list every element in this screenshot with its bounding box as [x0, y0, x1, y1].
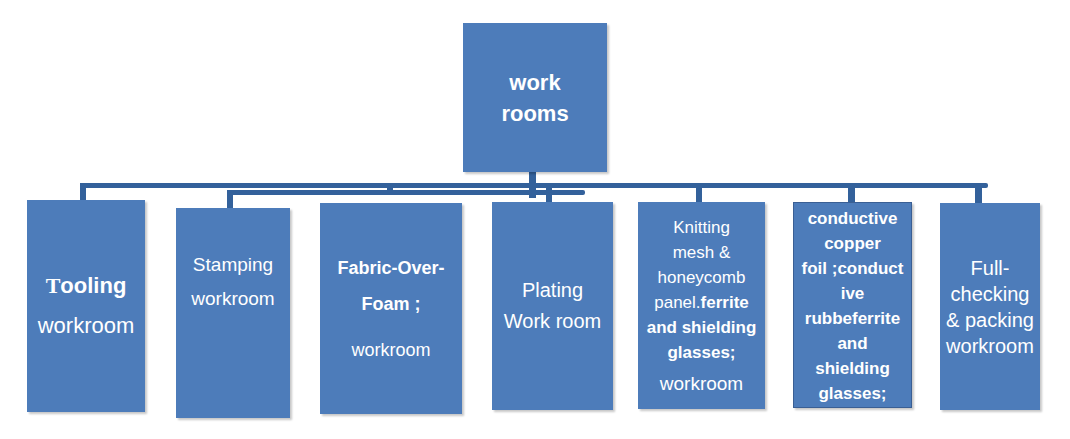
node-line-segment: ferrite	[701, 293, 749, 312]
node-line: rooms	[463, 98, 607, 129]
node-line: Knitting	[638, 215, 765, 240]
node-line-segment: Work room	[504, 310, 601, 332]
node-line: workroom	[27, 306, 145, 346]
node-line: honeycomb	[638, 265, 765, 290]
node-line: copper	[794, 231, 911, 256]
node-line: Stamping	[176, 248, 290, 282]
node-line: glasses;	[794, 381, 911, 406]
node-line: work	[463, 67, 607, 98]
node-line-segment: T	[46, 273, 61, 298]
node-line: mesh &	[638, 240, 765, 265]
node-line-segment: workroom	[660, 373, 743, 394]
node-line-segment: mesh &	[673, 243, 731, 262]
node-line: workroom	[940, 333, 1040, 359]
node-line-segment: workroom	[191, 288, 274, 309]
node-line-segment: copper	[824, 234, 881, 253]
node-line-segment: Plating	[522, 279, 583, 301]
node-line-segment: Fabric-Over-	[337, 258, 444, 278]
node-line-segment: workroom	[351, 340, 430, 360]
node-line: Plating	[492, 275, 613, 306]
node-fabric-over-foam-workroom: Fabric-Over-Foam ;workroom	[320, 203, 462, 414]
node-line-segment: Stamping	[193, 254, 273, 275]
node-line: & packing	[940, 307, 1040, 333]
node-line: and shielding	[638, 315, 765, 340]
node-line-segment: rubbeferrite	[805, 309, 900, 328]
node-line-segment: glasses;	[818, 384, 886, 403]
node-line: foil ;conduct	[794, 256, 911, 281]
node-line: Full-	[940, 255, 1040, 281]
drop-connector-full-checking	[975, 183, 982, 204]
node-conductive-copper-workroom: conductivecopperfoil ;conductiverubbefer…	[793, 202, 912, 408]
root-node-work-rooms: workrooms	[463, 23, 607, 172]
node-line-segment: Knitting	[673, 218, 730, 237]
node-line: glasses;	[638, 340, 765, 365]
node-line-segment: foil ;conduct	[802, 259, 904, 278]
node-line: checking	[940, 281, 1040, 307]
node-line-segment: work	[509, 70, 560, 95]
node-line: shielding	[794, 356, 911, 381]
node-line-segment: panel.	[654, 293, 700, 312]
node-line: workroom	[638, 371, 765, 397]
node-line: Foam ;	[320, 286, 462, 322]
node-line-segment: checking	[951, 283, 1030, 305]
drop-connector-fabric-over-foam	[387, 183, 393, 195]
node-line-segment: & packing	[946, 309, 1034, 331]
connector-rail-lower	[229, 190, 585, 195]
node-line-segment: and	[837, 334, 867, 353]
node-tooling-workroom: Toolingworkroom	[27, 200, 145, 412]
node-line: and	[794, 331, 911, 356]
node-line: workroom	[176, 282, 290, 316]
node-line-segment: conductive	[808, 209, 898, 228]
node-line-segment: Full-	[971, 257, 1010, 279]
node-line-segment: glasses;	[667, 343, 735, 362]
node-line: panel.ferrite	[638, 290, 765, 315]
node-stamping-workroom: Stampingworkroom	[176, 208, 290, 418]
node-knitting-mesh-workroom: Knittingmesh &honeycombpanel.ferriteand …	[638, 202, 765, 409]
node-line: conductive	[794, 206, 911, 231]
node-line-segment: honeycomb	[658, 268, 746, 287]
node-line: Tooling	[27, 266, 145, 306]
drop-connector-conductive-copper	[848, 183, 855, 203]
node-line-segment: and shielding	[647, 318, 757, 337]
node-line: Fabric-Over-	[320, 250, 462, 286]
drop-connector-plating	[546, 183, 552, 204]
node-line: rubbeferrite	[794, 306, 911, 331]
node-line: workroom	[320, 332, 462, 368]
node-plating-work-room: PlatingWork room	[492, 202, 613, 410]
node-line-segment: Foam ;	[361, 294, 420, 314]
node-full-checking-packing-workroom: Full-checking& packingworkroom	[940, 203, 1040, 410]
node-line: Work room	[492, 306, 613, 337]
node-line-segment: shielding	[815, 359, 890, 378]
node-line-segment: rooms	[501, 101, 568, 126]
drop-connector-knitting-mesh	[696, 183, 702, 204]
node-line-segment: workroom	[38, 313, 135, 338]
org-chart-canvas: workrooms Toolingworkroom Stampingworkro…	[0, 0, 1070, 439]
node-line-segment: workroom	[946, 335, 1034, 357]
drop-connector-stamping	[227, 190, 233, 210]
node-line: ive	[794, 281, 911, 306]
node-line-segment: ooling	[60, 273, 126, 298]
node-line-segment: ive	[841, 284, 865, 303]
